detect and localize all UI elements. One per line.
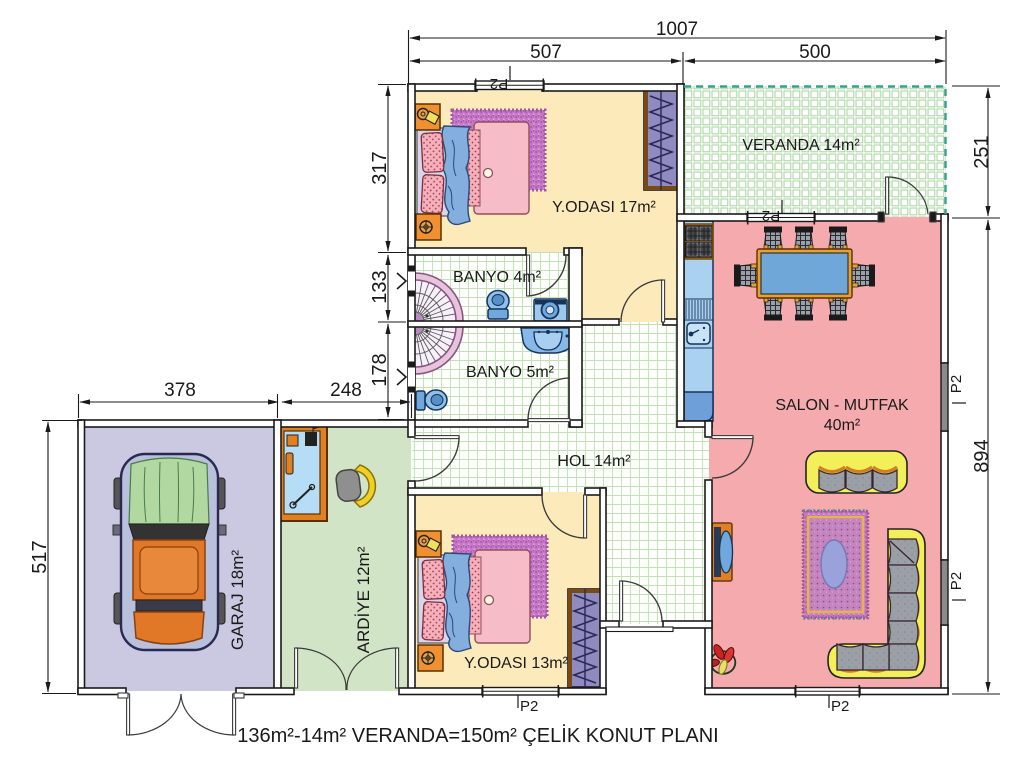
- svg-text:507: 507: [530, 42, 562, 63]
- svg-text:133: 133: [369, 270, 391, 303]
- svg-text:894: 894: [971, 439, 993, 472]
- svg-text:136m²-14m² VERANDA=150m² ÇELİK: 136m²-14m² VERANDA=150m² ÇELİK KONUT PLA…: [237, 724, 718, 747]
- svg-text:P2: P2: [948, 375, 965, 393]
- svg-text:HOL 14m²: HOL 14m²: [557, 453, 631, 470]
- svg-text:378: 378: [164, 380, 196, 401]
- svg-text:P2: P2: [831, 698, 849, 715]
- svg-text:178: 178: [369, 353, 391, 386]
- svg-text:Y.ODASI 17m²: Y.ODASI 17m²: [552, 199, 656, 216]
- svg-text:317: 317: [369, 151, 391, 184]
- svg-text:P2: P2: [762, 207, 780, 224]
- svg-text:517: 517: [29, 540, 51, 573]
- svg-text:BANYO 5m²: BANYO 5m²: [466, 364, 555, 381]
- svg-text:251: 251: [971, 135, 993, 168]
- svg-text:P2: P2: [948, 572, 965, 590]
- svg-text:BANYO 4m²: BANYO 4m²: [453, 269, 542, 286]
- svg-text:P2: P2: [490, 75, 508, 92]
- svg-text:1007: 1007: [656, 19, 698, 40]
- svg-text:P2: P2: [520, 698, 538, 715]
- svg-text:VERANDA 14m²: VERANDA 14m²: [742, 137, 860, 154]
- svg-text:500: 500: [799, 42, 831, 63]
- svg-text:ARDİYE 12m²: ARDİYE 12m²: [354, 546, 373, 653]
- svg-text:40m²: 40m²: [824, 417, 861, 434]
- svg-text:GARAJ 18m²: GARAJ 18m²: [228, 550, 247, 650]
- svg-text:248: 248: [330, 380, 362, 401]
- svg-text:SALON - MUTFAK: SALON - MUTFAK: [775, 397, 909, 414]
- svg-text:Y.ODASI 13m²: Y.ODASI 13m²: [464, 655, 568, 672]
